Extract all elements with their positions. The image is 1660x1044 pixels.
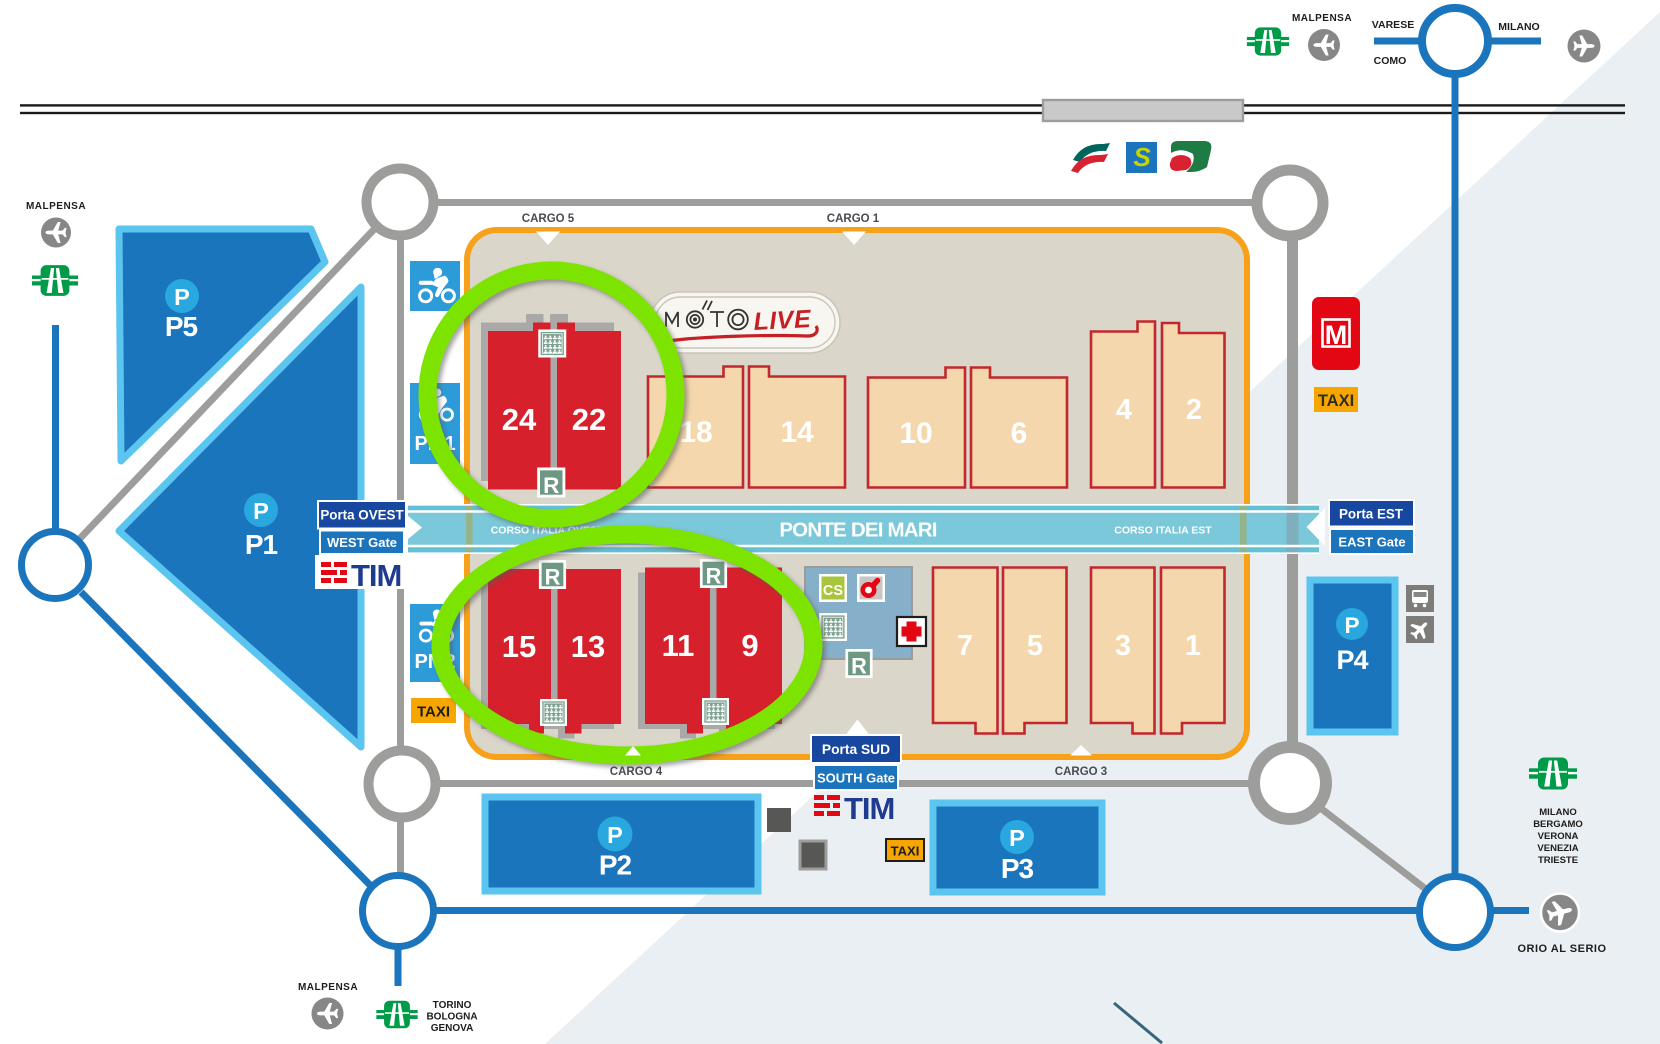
- svg-text:CORSO ITALIA EST: CORSO ITALIA EST: [1114, 525, 1212, 537]
- svg-text:P: P: [1009, 825, 1025, 851]
- svg-text:CARGO 5: CARGO 5: [522, 213, 575, 225]
- svg-text:P5: P5: [165, 311, 198, 342]
- svg-text:TAXI: TAXI: [1318, 392, 1354, 410]
- svg-text:LIVE: LIVE: [753, 305, 813, 336]
- svg-text:VENEZIA: VENEZIA: [1537, 843, 1578, 854]
- svg-text:P: P: [607, 822, 623, 848]
- svg-text:M: M: [1325, 320, 1348, 350]
- svg-text:PONTE DEI MARI: PONTE DEI MARI: [779, 519, 936, 542]
- svg-text:7: 7: [957, 630, 973, 662]
- svg-text:9: 9: [741, 628, 758, 663]
- svg-text:VARESE: VARESE: [1372, 19, 1414, 31]
- svg-text:Porta SUD: Porta SUD: [822, 742, 890, 757]
- svg-text:MILANO: MILANO: [1498, 21, 1539, 33]
- svg-text:BERGAMO: BERGAMO: [1533, 819, 1583, 830]
- svg-text:P: P: [1344, 613, 1359, 638]
- svg-text:SOUTH Gate: SOUTH Gate: [817, 771, 895, 786]
- svg-text:ORIO AL SERIO: ORIO AL SERIO: [1517, 943, 1606, 955]
- svg-text:TIM: TIM: [844, 791, 894, 826]
- svg-text:22: 22: [572, 402, 606, 437]
- svg-text:MALPENSA: MALPENSA: [298, 982, 358, 993]
- svg-text:P: P: [253, 498, 269, 524]
- svg-text:18: 18: [679, 416, 712, 449]
- svg-text:P3: P3: [1001, 853, 1034, 884]
- svg-text:CS: CS: [823, 583, 843, 599]
- svg-text:P2: P2: [599, 850, 632, 881]
- svg-text:CARGO 3: CARGO 3: [1055, 766, 1107, 778]
- svg-text:CARGO 4: CARGO 4: [610, 766, 663, 778]
- svg-text:TRIESTE: TRIESTE: [1538, 855, 1578, 866]
- svg-text:P: P: [174, 284, 190, 310]
- svg-text:6: 6: [1011, 417, 1028, 450]
- svg-text:24: 24: [502, 402, 537, 437]
- svg-text:P1: P1: [245, 529, 278, 560]
- svg-text:1: 1: [1185, 630, 1201, 662]
- svg-text:VERONA: VERONA: [1538, 831, 1579, 842]
- svg-text:5: 5: [1027, 630, 1043, 662]
- svg-text:3: 3: [1115, 630, 1131, 662]
- svg-text:MILANO: MILANO: [1539, 807, 1576, 818]
- svg-text:TAXI: TAXI: [891, 844, 920, 859]
- svg-text:Porta EST: Porta EST: [1339, 507, 1404, 522]
- svg-text:10: 10: [899, 417, 932, 450]
- svg-text:MALPENSA: MALPENSA: [1292, 13, 1352, 24]
- svg-text:Porta OVEST: Porta OVEST: [320, 508, 404, 523]
- svg-text:P4: P4: [1336, 645, 1368, 675]
- svg-text:WEST Gate: WEST Gate: [327, 535, 397, 550]
- svg-text:BOLOGNA: BOLOGNA: [426, 1012, 477, 1023]
- svg-text:15: 15: [502, 629, 536, 664]
- svg-text:TIM: TIM: [351, 558, 401, 593]
- svg-text:2: 2: [1186, 394, 1202, 426]
- svg-text:11: 11: [662, 628, 695, 663]
- svg-text:COMO: COMO: [1374, 55, 1407, 67]
- svg-text:4: 4: [1116, 394, 1132, 426]
- svg-text:GENOVA: GENOVA: [431, 1023, 474, 1034]
- svg-text:14: 14: [780, 416, 814, 449]
- svg-text:MALPENSA: MALPENSA: [26, 201, 86, 212]
- svg-text:S: S: [1133, 142, 1151, 172]
- svg-text:TORINO: TORINO: [433, 1000, 472, 1011]
- svg-text:TAXI: TAXI: [417, 704, 450, 721]
- svg-text:EAST Gate: EAST Gate: [1338, 535, 1405, 550]
- svg-text:CARGO 1: CARGO 1: [827, 213, 880, 225]
- svg-text:13: 13: [571, 629, 605, 664]
